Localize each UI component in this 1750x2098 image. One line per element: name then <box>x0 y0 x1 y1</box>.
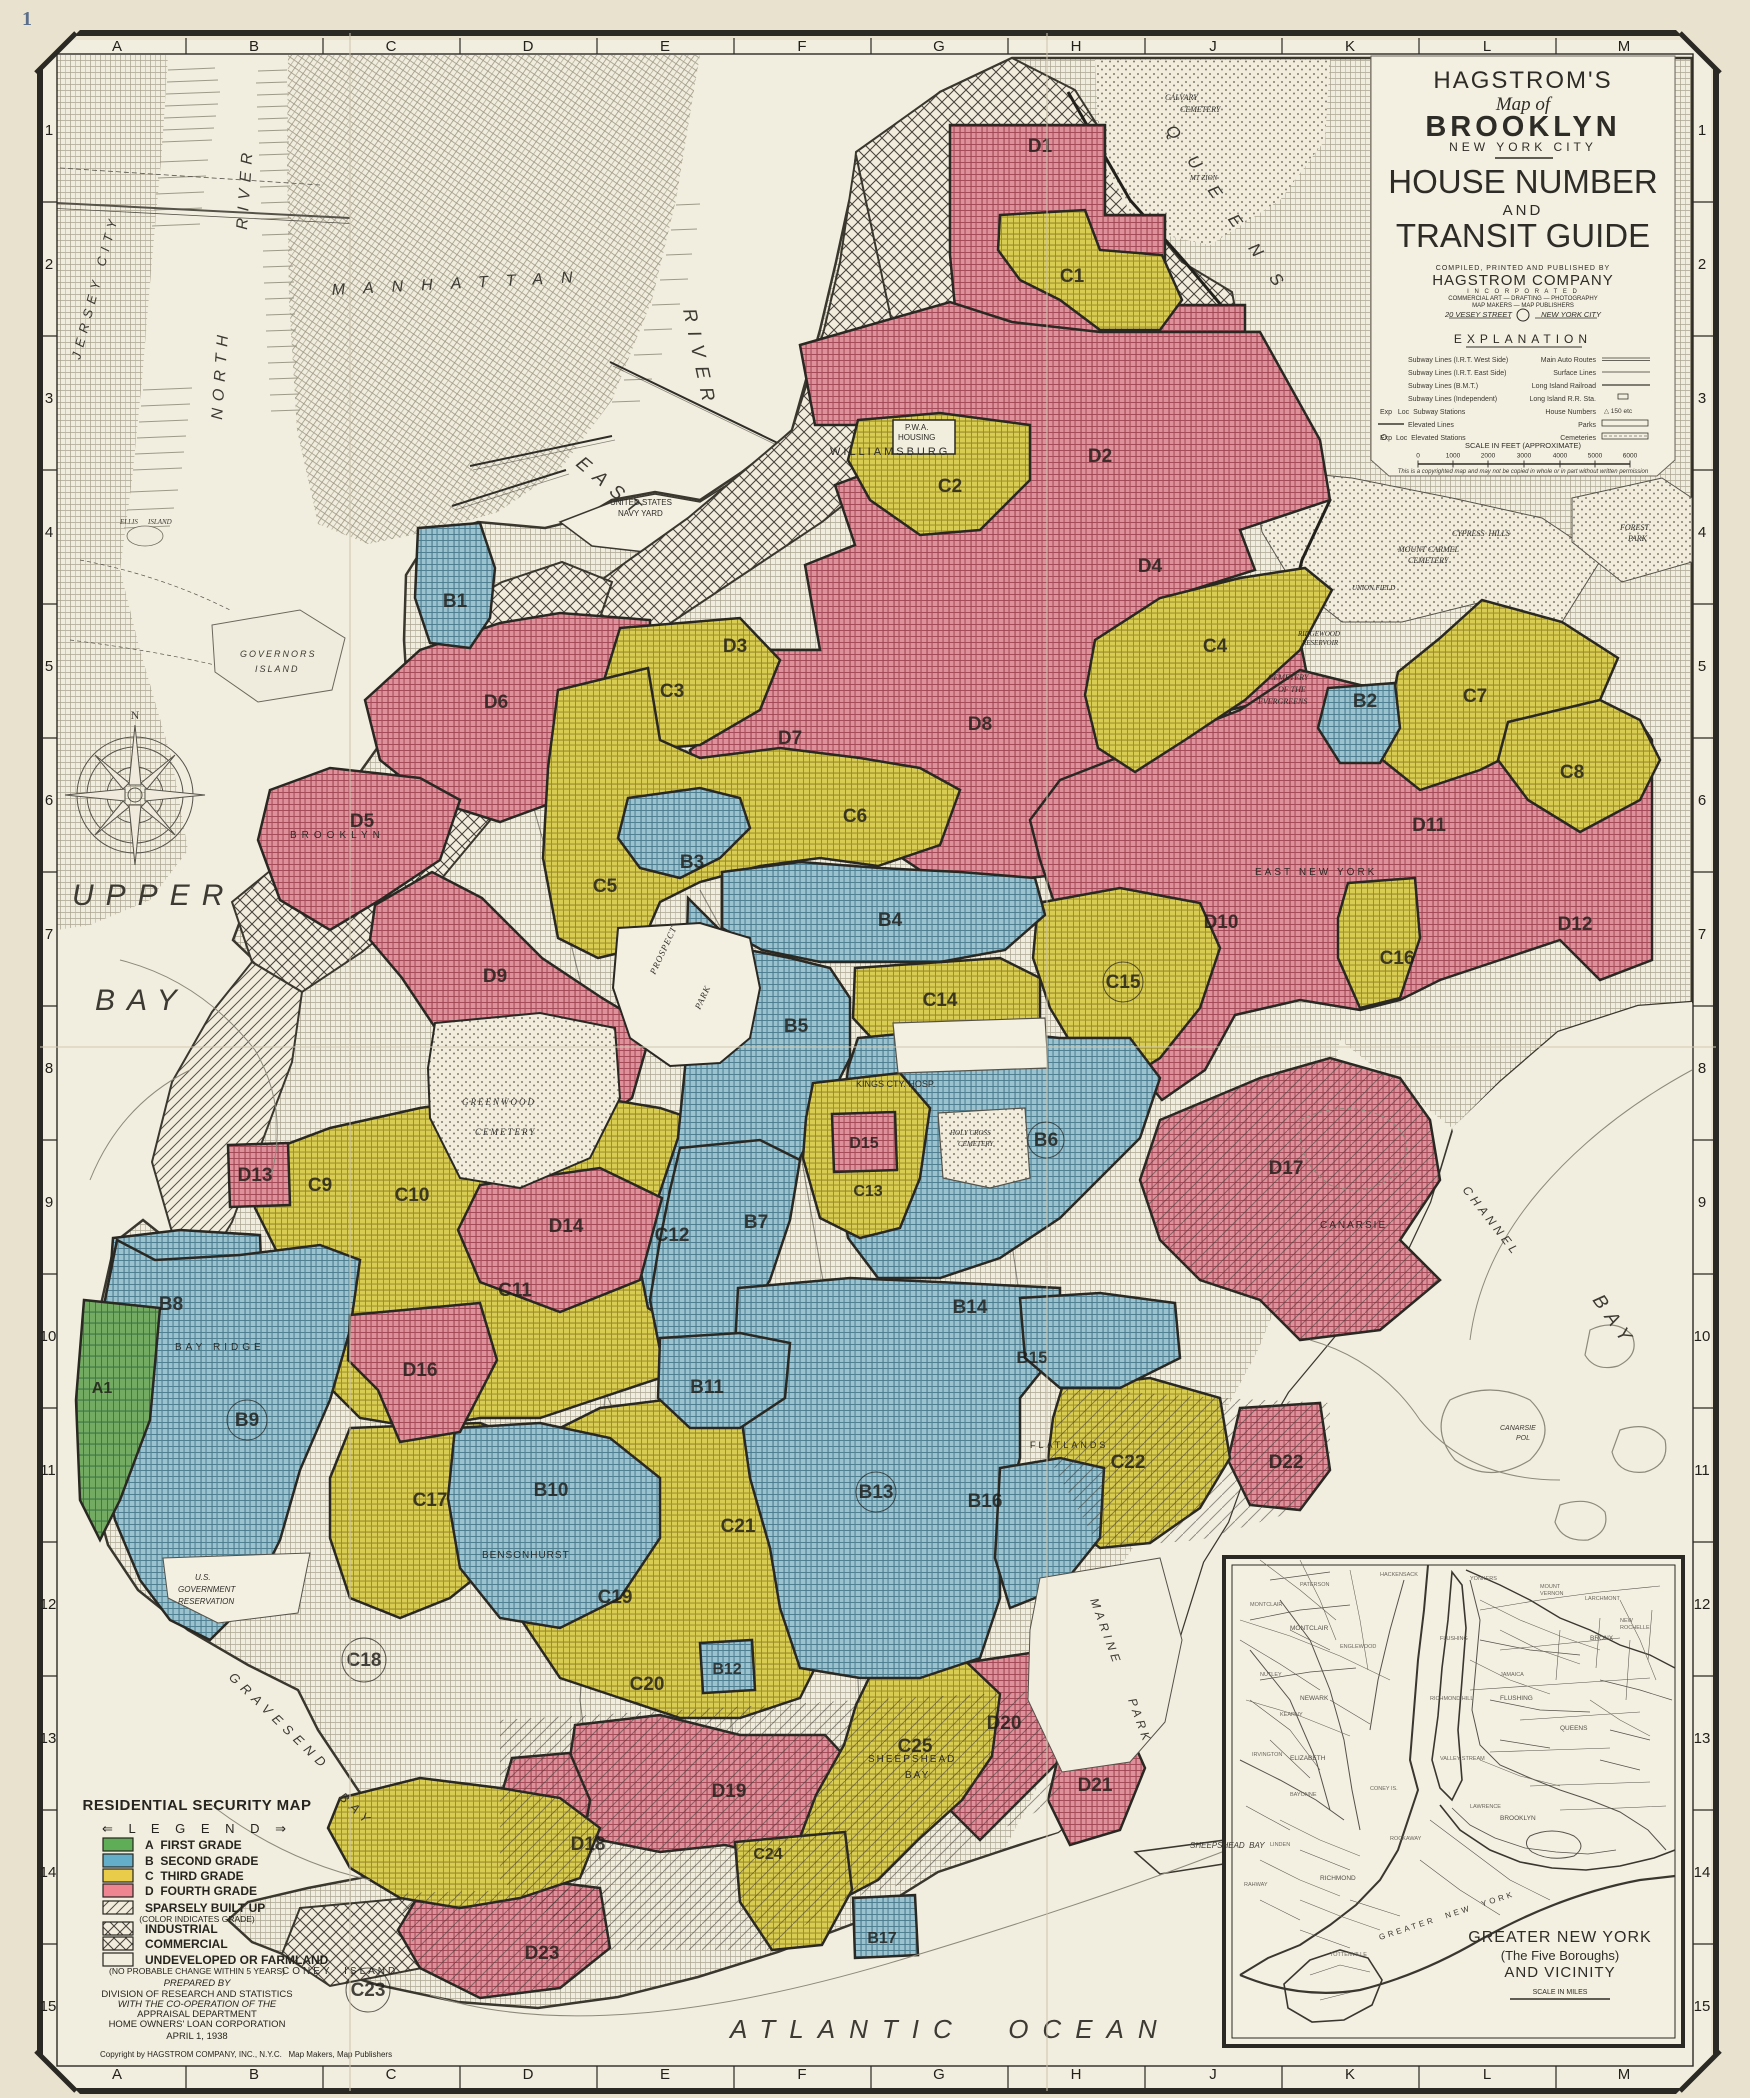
svg-text:C23: C23 <box>351 1980 386 2001</box>
svg-text:EXPLANATION: EXPLANATION <box>1454 332 1592 346</box>
svg-text:11: 11 <box>1694 1462 1710 1479</box>
svg-text:NUTLEY: NUTLEY <box>1260 1672 1282 1678</box>
svg-text:KINGS CTY. HOSP.: KINGS CTY. HOSP. <box>856 1079 935 1089</box>
svg-text:3: 3 <box>45 390 53 407</box>
svg-text:C13: C13 <box>853 1183 882 1200</box>
svg-text:House Numbers: House Numbers <box>1545 409 1596 416</box>
svg-text:LARCHMONT: LARCHMONT <box>1585 1596 1620 1602</box>
svg-text:CEMETERY: CEMETERY <box>1268 673 1310 682</box>
svg-text:D9: D9 <box>483 966 507 987</box>
svg-text:HOME OWNERS' LOAN CORPORATION: HOME OWNERS' LOAN CORPORATION <box>109 2019 286 2030</box>
svg-text:NAVY YARD: NAVY YARD <box>618 509 663 518</box>
svg-text:11: 11 <box>40 1462 56 1479</box>
svg-text:B13: B13 <box>859 1482 894 1503</box>
svg-text:C14: C14 <box>923 990 958 1011</box>
svg-text:CEMETERY: CEMETERY <box>958 1140 994 1148</box>
svg-text:5000: 5000 <box>1588 453 1603 460</box>
svg-text:C5: C5 <box>593 876 618 897</box>
svg-text:MONTCLAIR: MONTCLAIR <box>1290 1625 1329 1632</box>
svg-text:C24: C24 <box>753 1846 782 1863</box>
svg-text:(The Five Boroughs): (The Five Boroughs) <box>1501 1948 1620 1963</box>
svg-text:7: 7 <box>1698 926 1706 943</box>
svg-text:SCALE IN FEET (APPROXIMATE): SCALE IN FEET (APPROXIMATE) <box>1465 441 1581 450</box>
svg-text:CONEY IS.: CONEY IS. <box>1370 1786 1398 1792</box>
svg-text:Surface Lines: Surface Lines <box>1553 370 1596 377</box>
svg-text:B15: B15 <box>1016 1348 1047 1367</box>
svg-text:A1: A1 <box>92 1380 113 1397</box>
svg-text:Subway Lines (B.M.T.): Subway Lines (B.M.T.) <box>1408 383 1478 390</box>
svg-text:L: L <box>1483 2066 1491 2083</box>
svg-text:4: 4 <box>1698 524 1706 541</box>
svg-text:D16: D16 <box>403 1360 438 1381</box>
svg-text:UNION FIELD: UNION FIELD <box>1352 584 1395 592</box>
svg-text:D5: D5 <box>350 811 375 832</box>
svg-text:Long Island Railroad: Long Island Railroad <box>1532 383 1596 390</box>
svg-text:BROOKLYN: BROOKLYN <box>1500 1815 1536 1822</box>
svg-text:N: N <box>131 708 140 722</box>
svg-text:10: 10 <box>40 1328 57 1345</box>
svg-text:HACKENSACK: HACKENSACK <box>1380 1572 1418 1578</box>
svg-text:D12: D12 <box>1558 914 1593 935</box>
svg-text:BAY: BAY <box>905 1770 930 1781</box>
svg-text:Subway Lines (Independent): Subway Lines (Independent) <box>1408 396 1497 403</box>
svg-text:ISLAND: ISLAND <box>147 518 172 526</box>
svg-text:MT ZION: MT ZION <box>1189 174 1218 182</box>
svg-text:QUEENS: QUEENS <box>1560 1725 1588 1732</box>
svg-text:6: 6 <box>1698 792 1706 809</box>
svg-text:D4: D4 <box>1138 556 1163 577</box>
svg-text:B SECOND GRADE: B SECOND GRADE <box>145 1854 258 1868</box>
svg-text:BAYONNE: BAYONNE <box>1290 1792 1317 1798</box>
svg-text:YONKERS: YONKERS <box>1470 1576 1497 1582</box>
svg-text:NEWARK: NEWARK <box>1300 1695 1329 1702</box>
svg-text:8: 8 <box>1698 1060 1706 1077</box>
svg-text:D15: D15 <box>849 1135 878 1152</box>
svg-text:Parks: Parks <box>1578 422 1596 429</box>
svg-text:D3: D3 <box>723 636 747 657</box>
svg-text:B3: B3 <box>680 852 704 873</box>
svg-text:D10: D10 <box>1204 912 1239 933</box>
svg-text:UNITED STATES: UNITED STATES <box>610 498 672 507</box>
svg-text:C25: C25 <box>898 1736 933 1757</box>
svg-text:EAST NEW YORK: EAST NEW YORK <box>1255 867 1377 878</box>
svg-text:ENGLEWOOD: ENGLEWOOD <box>1340 1644 1376 1650</box>
svg-text:13: 13 <box>1694 1730 1711 1747</box>
svg-text:ATLANTIC OCEAN: ATLANTIC OCEAN <box>728 2014 1171 2044</box>
svg-text:SHEEPSHEAD BAY: SHEEPSHEAD BAY <box>1190 1841 1265 1850</box>
svg-text:D23: D23 <box>525 1943 560 1964</box>
svg-text:C6: C6 <box>843 806 867 827</box>
svg-text:D7: D7 <box>778 728 802 749</box>
svg-text:B9: B9 <box>235 1410 259 1431</box>
svg-text:D22: D22 <box>1269 1452 1304 1473</box>
svg-text:15: 15 <box>1694 1998 1711 2015</box>
svg-text:(COLOR INDICATES GRADE): (COLOR INDICATES GRADE) <box>139 1914 255 1924</box>
svg-text:C22: C22 <box>1111 1452 1146 1473</box>
svg-text:J: J <box>1209 38 1217 55</box>
svg-text:B5: B5 <box>784 1016 809 1037</box>
svg-text:UNDEVELOPED OR FARMLAND: UNDEVELOPED OR FARMLAND <box>145 1953 329 1967</box>
svg-text:C15: C15 <box>1106 972 1141 993</box>
svg-text:D6: D6 <box>484 692 508 713</box>
svg-text:Subway Lines (I.R.T. West Side: Subway Lines (I.R.T. West Side) <box>1408 357 1508 364</box>
svg-text:C17: C17 <box>413 1490 448 1511</box>
svg-text:D18: D18 <box>571 1834 606 1855</box>
svg-text:B17: B17 <box>867 1930 896 1947</box>
svg-text:B4: B4 <box>878 910 903 931</box>
svg-text:FLUSHING: FLUSHING <box>1440 1636 1468 1642</box>
svg-text:GOVERNMENT: GOVERNMENT <box>178 1585 236 1594</box>
svg-text:C THIRD GRADE: C THIRD GRADE <box>145 1869 244 1883</box>
svg-text:2000: 2000 <box>1481 453 1496 460</box>
svg-text:ELIZABETH: ELIZABETH <box>1290 1755 1326 1762</box>
svg-text:2: 2 <box>45 256 53 273</box>
svg-text:CANARSIE: CANARSIE <box>1500 1425 1536 1432</box>
svg-text:This is a copyrighted map and: This is a copyrighted map and may not be… <box>1398 469 1649 475</box>
svg-text:A: A <box>112 38 122 55</box>
svg-text:A: A <box>112 2066 122 2083</box>
svg-text:BENSONHURST: BENSONHURST <box>482 1550 570 1561</box>
svg-text:B8: B8 <box>159 1294 183 1315</box>
svg-text:CYPRESS HILLS: CYPRESS HILLS <box>1452 529 1510 538</box>
svg-text:3: 3 <box>1698 390 1706 407</box>
svg-text:WILLIAMSBURG: WILLIAMSBURG <box>830 446 950 458</box>
svg-text:MAP MAKERS — MAP PUBLISHERS: MAP MAKERS — MAP PUBLISHERS <box>1472 303 1574 309</box>
svg-text:13: 13 <box>40 1730 57 1747</box>
svg-text:PARK: PARK <box>1627 534 1648 543</box>
svg-text:B14: B14 <box>953 1297 988 1318</box>
svg-text:CALVARY: CALVARY <box>1165 93 1199 102</box>
svg-text:1: 1 <box>22 8 32 30</box>
svg-text:RESERVATION: RESERVATION <box>178 1597 234 1606</box>
svg-text:B10: B10 <box>534 1480 569 1501</box>
svg-text:C3: C3 <box>660 681 684 702</box>
svg-text:FLUSHING: FLUSHING <box>1500 1695 1533 1702</box>
svg-text:P.W.A.: P.W.A. <box>905 423 928 432</box>
svg-text:Long Island R.R. Sta.: Long Island R.R. Sta. <box>1529 396 1596 403</box>
svg-text:COMMERCIAL: COMMERCIAL <box>145 1937 228 1951</box>
svg-text:B7: B7 <box>744 1212 768 1233</box>
svg-text:GOVERNORS: GOVERNORS <box>240 649 317 659</box>
svg-text:Main Auto Routes: Main Auto Routes <box>1541 357 1597 364</box>
svg-text:GREENWOOD: GREENWOOD <box>462 1097 536 1107</box>
svg-text:HOUSING: HOUSING <box>898 433 935 442</box>
svg-text:C2: C2 <box>938 476 962 497</box>
svg-text:SCALE IN MILES: SCALE IN MILES <box>1533 1989 1588 1996</box>
svg-text:1000: 1000 <box>1446 453 1461 460</box>
svg-text:IRVINGTON: IRVINGTON <box>1252 1752 1282 1758</box>
svg-text:9: 9 <box>45 1194 53 1211</box>
svg-text:10: 10 <box>1694 1328 1711 1345</box>
svg-text:B: B <box>249 38 259 55</box>
svg-text:C10: C10 <box>395 1185 430 1206</box>
svg-text:E: E <box>660 2066 670 2083</box>
svg-text:D: D <box>523 2066 534 2083</box>
svg-text:6: 6 <box>45 792 53 809</box>
svg-text:F: F <box>797 2066 806 2083</box>
svg-text:BRONX: BRONX <box>1590 1635 1614 1642</box>
svg-text:AND VICINITY: AND VICINITY <box>1504 1964 1615 1981</box>
svg-text:LINDEN: LINDEN <box>1270 1842 1290 1848</box>
svg-text:G: G <box>933 2066 945 2083</box>
svg-text:RESERVOIR: RESERVOIR <box>1301 639 1339 647</box>
svg-text:RIDGEWOOD: RIDGEWOOD <box>1297 630 1340 638</box>
svg-text:D21: D21 <box>1078 1775 1113 1796</box>
svg-text:8: 8 <box>45 1060 53 1077</box>
svg-text:NEW YORK CITY: NEW YORK CITY <box>1449 140 1597 154</box>
svg-text:D8: D8 <box>968 714 992 735</box>
svg-text:CONEY ISLAND: CONEY ISLAND <box>282 1966 398 1977</box>
svg-text:ELLIS: ELLIS <box>119 518 138 526</box>
svg-text:BAY: BAY <box>95 984 189 1017</box>
svg-text:PREPARED BY: PREPARED BY <box>164 1978 232 1989</box>
svg-text:C: C <box>386 38 397 55</box>
svg-text:C7: C7 <box>1463 686 1487 707</box>
svg-text:12: 12 <box>1694 1596 1711 1613</box>
svg-text:C16: C16 <box>1380 948 1415 969</box>
svg-text:C4: C4 <box>1203 636 1228 657</box>
svg-text:CEMETERY: CEMETERY <box>1180 105 1222 114</box>
svg-text:2: 2 <box>1698 256 1706 273</box>
svg-text:D13: D13 <box>238 1165 273 1186</box>
svg-text:Exp Loc Elevated Stations: Exp Loc Elevated Stations <box>1380 435 1466 442</box>
svg-text:K: K <box>1345 2066 1355 2083</box>
svg-text:L: L <box>1483 38 1491 55</box>
svg-text:CANARSIE: CANARSIE <box>1320 1220 1387 1231</box>
svg-text:D: D <box>523 38 534 55</box>
svg-text:7: 7 <box>45 926 53 943</box>
svg-text:BROOKLYN: BROOKLYN <box>1425 111 1620 143</box>
svg-text:9: 9 <box>1698 1194 1706 1211</box>
svg-text:D FOURTH GRADE: D FOURTH GRADE <box>145 1884 257 1898</box>
svg-text:COMMERCIAL ART — DRAFTING — PH: COMMERCIAL ART — DRAFTING — PHOTOGRAPHY <box>1448 296 1597 302</box>
svg-text:M: M <box>1618 38 1631 55</box>
svg-text:FOREST: FOREST <box>1619 523 1649 532</box>
svg-text:HAGSTROM COMPANY: HAGSTROM COMPANY <box>1432 272 1614 289</box>
svg-text:Exp Loc Subway Stations: Exp Loc Subway Stations <box>1380 409 1466 416</box>
svg-text:15: 15 <box>40 1998 57 2015</box>
svg-text:H: H <box>1071 38 1082 55</box>
svg-text:B12: B12 <box>712 1661 741 1678</box>
svg-text:F: F <box>797 38 806 55</box>
svg-text:(NO PROBABLE CHANGE WITHIN 5 Y: (NO PROBABLE CHANGE WITHIN 5 YEARS) <box>109 1966 285 1976</box>
svg-text:⇐ L E G E N D ⇒: ⇐ L E G E N D ⇒ <box>102 1821 292 1836</box>
svg-text:ISLAND: ISLAND <box>255 664 300 674</box>
svg-text:C20: C20 <box>630 1674 665 1695</box>
svg-text:K: K <box>1345 38 1355 55</box>
svg-text:5: 5 <box>1698 658 1706 675</box>
svg-text:D20: D20 <box>987 1713 1022 1734</box>
svg-text:D19: D19 <box>712 1781 747 1802</box>
svg-text:HOUSE NUMBER: HOUSE NUMBER <box>1388 163 1658 200</box>
svg-text:D14: D14 <box>549 1216 584 1237</box>
svg-text:B16: B16 <box>968 1491 1003 1512</box>
svg-text:4000: 4000 <box>1553 453 1568 460</box>
svg-text:C: C <box>386 2066 397 2083</box>
svg-text:LAWRENCE: LAWRENCE <box>1470 1804 1501 1810</box>
svg-text:C11: C11 <box>498 1280 532 1301</box>
svg-text:14: 14 <box>1694 1864 1711 1881</box>
svg-text:OF THE: OF THE <box>1278 685 1306 694</box>
svg-text:INDUSTRIAL: INDUSTRIAL <box>145 1922 218 1936</box>
svg-text:5: 5 <box>45 658 53 675</box>
svg-text:C12: C12 <box>655 1225 690 1246</box>
svg-text:B2: B2 <box>1353 691 1377 712</box>
svg-text:U.S.: U.S. <box>195 1573 211 1582</box>
svg-text:VERNON: VERNON <box>1540 1591 1564 1597</box>
svg-text:A FIRST GRADE: A FIRST GRADE <box>145 1838 242 1852</box>
svg-text:B11: B11 <box>690 1377 724 1398</box>
svg-text:H: H <box>1071 2066 1082 2083</box>
svg-text:3000: 3000 <box>1517 453 1532 460</box>
svg-text:SPARSELY BUILT UP: SPARSELY BUILT UP <box>145 1901 265 1915</box>
svg-text:E: E <box>660 38 670 55</box>
svg-text:MOUNT: MOUNT <box>1540 1584 1561 1590</box>
svg-text:6000: 6000 <box>1623 453 1638 460</box>
svg-text:C18: C18 <box>347 1650 382 1671</box>
svg-text:ROCKAWAY: ROCKAWAY <box>1390 1836 1422 1842</box>
svg-text:HOLY CROSS: HOLY CROSS <box>949 1129 991 1137</box>
svg-text:4: 4 <box>45 524 53 541</box>
svg-text:KEARNY: KEARNY <box>1280 1712 1303 1718</box>
svg-text:B: B <box>249 2066 259 2083</box>
svg-text:C19: C19 <box>598 1587 633 1608</box>
svg-text:B1: B1 <box>443 591 468 612</box>
svg-text:C1: C1 <box>1060 266 1085 287</box>
svg-text:14: 14 <box>40 1864 57 1881</box>
svg-text:CEMETERY: CEMETERY <box>475 1127 536 1137</box>
svg-text:BAY RIDGE: BAY RIDGE <box>175 1342 265 1353</box>
svg-text:0: 0 <box>1416 453 1420 460</box>
svg-text:C21: C21 <box>721 1516 756 1537</box>
svg-text:D11: D11 <box>1412 815 1446 836</box>
svg-text:△ 150 etc: △ 150 etc <box>1604 408 1633 415</box>
svg-text:RAHWAY: RAHWAY <box>1244 1882 1268 1888</box>
svg-text:MONTCLAIR: MONTCLAIR <box>1250 1602 1282 1608</box>
svg-text:Copyright by HAGSTROM COMPANY,: Copyright by HAGSTROM COMPANY, INC., N.Y… <box>100 2050 392 2059</box>
svg-text:1: 1 <box>1698 122 1706 139</box>
svg-text:FLATLANDS: FLATLANDS <box>1030 1440 1108 1450</box>
svg-text:COMPILED, PRINTED AND PUBLISHE: COMPILED, PRINTED AND PUBLISHED BY <box>1436 265 1610 272</box>
svg-text:M: M <box>1618 2066 1631 2083</box>
svg-text:POL: POL <box>1516 1435 1530 1442</box>
svg-text:HAGSTROM'S: HAGSTROM'S <box>1433 67 1612 94</box>
svg-text:J: J <box>1209 2066 1217 2083</box>
svg-text:RICHMOND: RICHMOND <box>1320 1875 1356 1882</box>
svg-text:EVERGREENS: EVERGREENS <box>1257 697 1307 706</box>
svg-text:APRIL 1, 1938: APRIL 1, 1938 <box>166 2031 227 2042</box>
svg-text:TRANSIT GUIDE: TRANSIT GUIDE <box>1396 217 1650 254</box>
svg-text:D1: D1 <box>1028 136 1053 157</box>
svg-text:G: G <box>933 38 945 55</box>
svg-text:TOTTENVILLE: TOTTENVILLE <box>1330 1952 1367 1958</box>
svg-text:GREATER NEW YORK: GREATER NEW YORK <box>1468 1929 1651 1946</box>
svg-text:12: 12 <box>40 1596 57 1613</box>
svg-text:D17: D17 <box>1269 1158 1304 1179</box>
svg-text:UPPER: UPPER <box>72 879 235 912</box>
svg-text:Subway Lines (I.R.T. East Side: Subway Lines (I.R.T. East Side) <box>1408 370 1506 377</box>
svg-text:RESIDENTIAL SECURITY MAP: RESIDENTIAL SECURITY MAP <box>83 1797 312 1814</box>
svg-text:MOUNT CARMEL: MOUNT CARMEL <box>1397 545 1460 554</box>
svg-text:CEMETERY: CEMETERY <box>1408 556 1450 565</box>
svg-text:C8: C8 <box>1560 762 1584 783</box>
svg-text:VALLEY STREAM: VALLEY STREAM <box>1440 1756 1485 1762</box>
svg-text:RICHMOND HILL: RICHMOND HILL <box>1430 1696 1473 1702</box>
svg-text:C9: C9 <box>308 1175 332 1196</box>
svg-text:Elevated Lines: Elevated Lines <box>1408 422 1454 429</box>
svg-text:1: 1 <box>45 122 53 139</box>
svg-text:D2: D2 <box>1088 446 1112 467</box>
svg-text:I N C O R P O R A T E D: I N C O R P O R A T E D <box>1467 289 1579 295</box>
svg-text:PATERSON: PATERSON <box>1300 1582 1329 1588</box>
